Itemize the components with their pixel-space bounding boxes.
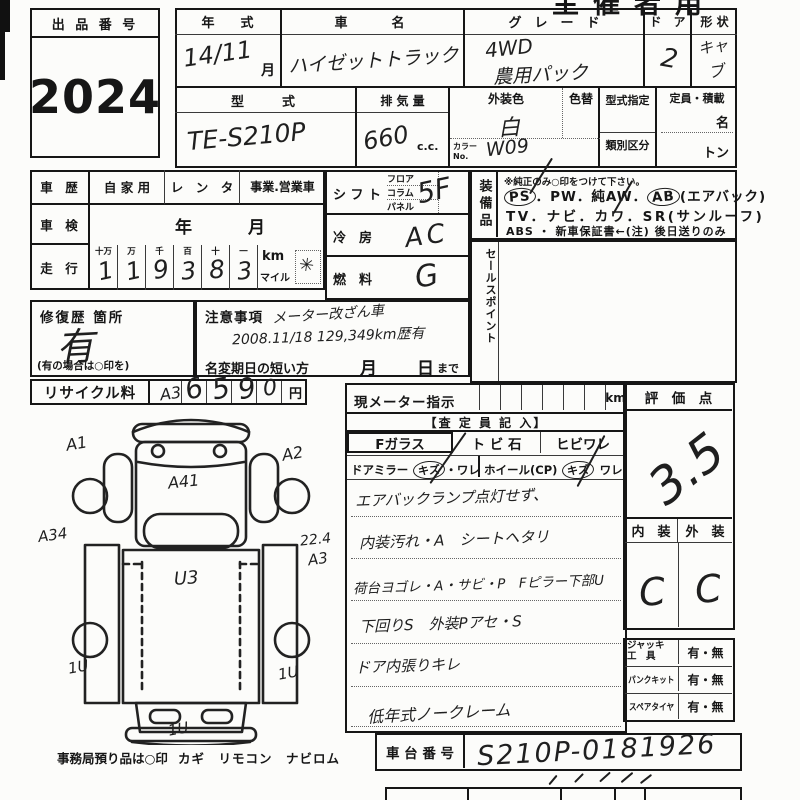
displacement-value: 660 [361,120,411,156]
equipment-line1: PS．PW．純AW．AB(エアバック) [504,185,766,206]
mileage-col: 一 3 [230,245,258,290]
inspector-note-3: 荷台ヨゴレ・A・サビ・P Fピラー下部U [353,569,605,598]
shape-value-2: ブ [706,57,725,83]
unit-mile: マイル [260,269,290,284]
inspection-month: 月 [248,213,265,238]
note-rule [351,516,621,517]
unit-mark-box: ✳ [295,250,321,284]
class-label: 類別区分 [600,133,655,175]
fuel-label: 燃 料 [333,269,372,288]
repair-box: 修復歴 箇所 有 (有の場合は○印を) [30,300,195,377]
door-label: ド ア [645,8,690,35]
damage-mark-rear-right: 1U [277,662,300,683]
car-name-value: ハイゼットトラック [287,40,459,79]
damage-mark-rear-left: 1U [67,656,90,677]
caution-line2: 2008.11/18 129,349km歴有 [232,323,425,350]
mileage-col: 千 9 [146,245,174,290]
tools-table: ジャッキ 工 具 有・無 パンクキット 有・無 スペアタイヤ 有・無 [623,638,735,722]
inspection-year: 年 [175,213,192,238]
note-rule [351,643,621,644]
model-label: 型 式 [175,88,355,113]
jack-label-1: ジャッキ [625,640,678,651]
mileage-col: 万 1 [118,245,146,290]
chassis-box: 車 台 番 号 S210P-0181926 [375,733,742,771]
inspector-note-6: 低年式ノークレーム [366,696,511,727]
capacity-tons: トン [703,142,729,161]
meter-digit-cell [501,385,522,410]
car-name-label: 車 名 [282,8,463,35]
year-label: 年 式 [175,8,280,35]
unit-km: km [262,249,284,264]
chassis-label: 車 台 番 号 [377,735,465,768]
cooling-label: 冷 房 [333,227,372,246]
exterior-label: 外 装 [678,519,732,542]
crack-label: ヒビワレ [541,432,625,453]
year-cell: 年 式 14/11 月 [175,8,282,88]
auction-number-box: 出 品 番 号 2024 [30,8,160,158]
bottom-partial-table [385,787,742,800]
damage-mark-bed: U3 [173,567,199,590]
sales-point-label: セールスポイント [472,242,499,381]
displacement-cell: 排 気 量 660 c.c. [357,88,450,168]
digit-value: 3 [180,256,198,285]
inspector-note-4: 下回りS 外装Pアセ・S [359,610,522,637]
door-value: 2 [659,43,681,75]
car-name-cell: 車 名 ハイゼットトラック [282,8,465,88]
mirror-cell: ドアミラー キズ・ワレ [347,456,480,477]
year-value: 14/11 [181,35,253,72]
digit-value: 8 [208,254,226,284]
type-designation-label: 型式指定 [600,88,655,133]
cooling-value: AC [403,218,451,254]
interior-exterior-divider [678,543,679,627]
spare-label-cell: スペアタイヤ [625,694,679,719]
spare-value: 有・無 [679,694,732,719]
wheel-cell: ホイール(CP) キズ ワレ [480,456,625,477]
caution-label: 注意事項 [205,306,263,326]
note-rule [351,558,621,559]
shape-cell: 形 状 キャ ブ [692,8,737,88]
wheel-label: ホイール(CP) [484,463,557,477]
puncture-value: 有・無 [679,667,732,691]
unit-mark: ✳ [298,254,316,277]
digit-header: 万 [118,245,145,257]
inspection-label: 車 検 [30,205,90,245]
digit-value: 1 [95,256,116,287]
month-suffix: 月 [261,60,275,80]
cooling-row: 冷 房 AC [325,215,470,257]
damage-mark-right-side-b: A3 [307,549,329,570]
door-mirror-label: ドアミラー [351,463,408,477]
color-no-label-2: No. [453,152,468,161]
pen-tick [599,772,611,783]
glass-row: Fガラス ト ビ 石 ヒビワレ [347,432,625,456]
bottom-divider [644,789,646,800]
color-no-label-1: カラー [453,141,477,152]
mirror-kizu: キズ [413,460,446,480]
capacity-label: 定員・積載 [657,88,737,108]
jack-label-cell: ジャッキ 工 具 [625,640,679,664]
damage-mark-rear-bottom: 1U [167,718,190,739]
damage-mark-right-side-a: 22.4 [299,530,332,549]
color-no-value: W09 [485,135,530,161]
mileage-unit-cell: km マイル [258,245,294,290]
repair-note: (有の場合は○印を) [37,358,129,373]
stone-chip-label: ト ビ 石 [453,432,541,453]
assessor-strip: 【査 定 員 記 入】 [347,414,625,432]
digit-value: 3 [236,256,254,285]
damage-mark-right-front: A2 [281,442,305,464]
equipment-ab-note: (エアバック) [680,189,766,205]
pen-tick [548,775,557,785]
grade-label: グ レ ー ド [465,8,643,35]
spare-label: スペアタイヤ [629,700,674,713]
scan-artifact [0,0,10,32]
mileage-col: 十 8 [202,245,230,290]
grade-value-line2: 農用パック [492,58,588,90]
bottom-divider [467,789,469,800]
score-label: 評 価 点 [625,385,732,411]
rename-month: 月 [360,354,377,379]
digit-header: 十万 [90,245,117,257]
shape-label: 形 状 [692,8,737,35]
jack-label-2: 工 具 [625,651,678,662]
type-designation-cell: 型式指定 類別区分 [600,88,657,168]
mileage-col: 十万 1 [90,245,118,290]
puncture-row: パンクキット 有・無 [625,667,732,694]
model-value: TE-S210P [186,117,307,156]
inspector-note-1: エアバックランプ点灯せず、 [355,484,549,512]
damage-mark-cab: A41 [167,470,200,492]
color-change-label: 色替 [562,88,600,108]
sales-point-box: セールスポイント [470,240,737,383]
rename-until: まで [437,360,459,376]
history-rental: レ ン タ [165,170,240,205]
note-rule [351,600,621,601]
chassis-value: S210P-0181926 [476,729,717,772]
puncture-label: パンクキット [628,673,674,686]
bottom-divider [614,789,616,800]
door-cell: ド ア 2 [645,8,692,88]
meter-digit-cell [522,385,543,410]
equipment-box: 装備品 ※純正のみ○印をつけて下さい。 PS．PW．純AW．AB(エアバック) … [470,170,737,240]
auction-number-value: 2024 [32,38,158,156]
exterior-value: C [693,566,724,613]
rename-day: 日 [417,354,434,379]
auction-sheet: 主催者用 出 品 番 号 2024 年 式 14/11 月 車 名 ハイゼットト… [0,0,800,800]
grade-cell: グ レ ー ド 4WD 農用パック [465,8,645,88]
shape-value-1: キャ [697,34,730,59]
pen-tick [574,773,584,783]
capacity-persons: 名 [716,112,729,131]
score-value: 3.5 [638,422,736,517]
meter-digit-cell [459,385,480,410]
meter-box: 現メーター指示 km 【査 定 員 記 入】 Fガラス ト ビ 石 ヒビワレ ド… [345,383,627,733]
interior-value: C [637,569,668,616]
score-box: 評 価 点 3.5 内 装 外 装 C C [623,383,735,630]
jack-row: ジャッキ 工 具 有・無 [625,640,732,667]
caution-box: 注意事項 メーター改ざん車 2008.11/18 129,349km歴有 名変期… [195,300,470,377]
history-label: 車 歴 [30,170,90,205]
damage-mark-front: A3 [159,383,183,405]
bottom-divider [560,789,562,800]
fuel-value: G [412,257,441,296]
shift-row: シ フ ト フロア コラム パネル 5F [325,170,470,215]
deposit-note: 事務局預り品は○印 [57,748,168,767]
wheel-ware: ワレ [600,463,623,477]
equipment-line3: ABS ・ 新車保証書←(注) 後日送りのみ [506,223,727,239]
equipment-line2: TV．ナビ．カワ．SR(サンルーフ) [506,205,764,225]
exterior-color-cell: 外装色 色替 白 カラー No. W09 [450,88,600,168]
displacement-unit: c.c. [417,140,438,153]
f-glass-label: Fガラス [347,432,453,453]
history-private: 自 家 用 [90,170,165,205]
inspector-note-2: 内装汚れ・A シートヘタリ [359,526,550,554]
shift-value: 5F [414,171,454,210]
note-rule [351,686,621,687]
inspector-note-5: ドア内張りキレ [355,653,461,678]
meter-digit-cell [543,385,564,410]
capacity-cell: 定員・積載 名 トン [657,88,737,168]
digit-value: 9 [151,254,171,285]
deposit-items: カギ リモコン ナビロム [178,748,340,767]
history-business: 事業.営業車 [240,170,325,205]
shift-label: シ フ ト [333,184,381,203]
fuel-row: 燃 料 G [325,257,470,300]
meter-row: 現メーター指示 km [347,385,625,414]
equipment-label: 装備品 [472,172,498,237]
model-cell: 型 式 TE-S210P [175,88,357,168]
pen-tick [621,772,634,783]
meter-digit-cell [564,385,585,410]
jack-value: 有・無 [679,640,732,664]
damage-mark-left-front: A1 [65,432,89,454]
color-no-strip: カラー No. W09 [450,138,600,168]
mileage-col: 百 3 [174,245,202,290]
interior-exterior-header: 内 装 外 装 [625,517,732,543]
equipment-mid1: ．PW．純AW． [536,189,648,205]
auction-number-label: 出 品 番 号 [32,10,158,38]
interior-label: 内 装 [625,519,678,542]
grade-value-line1: 4WD [484,34,534,63]
mileage-label: 走 行 [30,245,90,290]
capacity-divider [661,132,733,133]
pen-tick [640,774,652,784]
meter-label: 現メーター指示 [354,391,456,411]
meter-digit-cell [480,385,501,410]
mirror-ware: ・ワレ [445,463,480,477]
displacement-label: 排 気 量 [357,88,448,113]
digit-header: 百 [174,245,201,257]
spare-row: スペアタイヤ 有・無 [625,694,732,719]
meter-digit-cell [585,385,606,410]
digit-header: 一 [230,245,257,257]
puncture-label-cell: パンクキット [625,667,679,691]
digit-value: 1 [123,256,144,287]
damage-diagram: A3 A1 A2 A41 A34 22.4 A3 U3 1U 1U 1U [38,392,345,745]
exterior-color-label: 外装色 [450,88,562,108]
